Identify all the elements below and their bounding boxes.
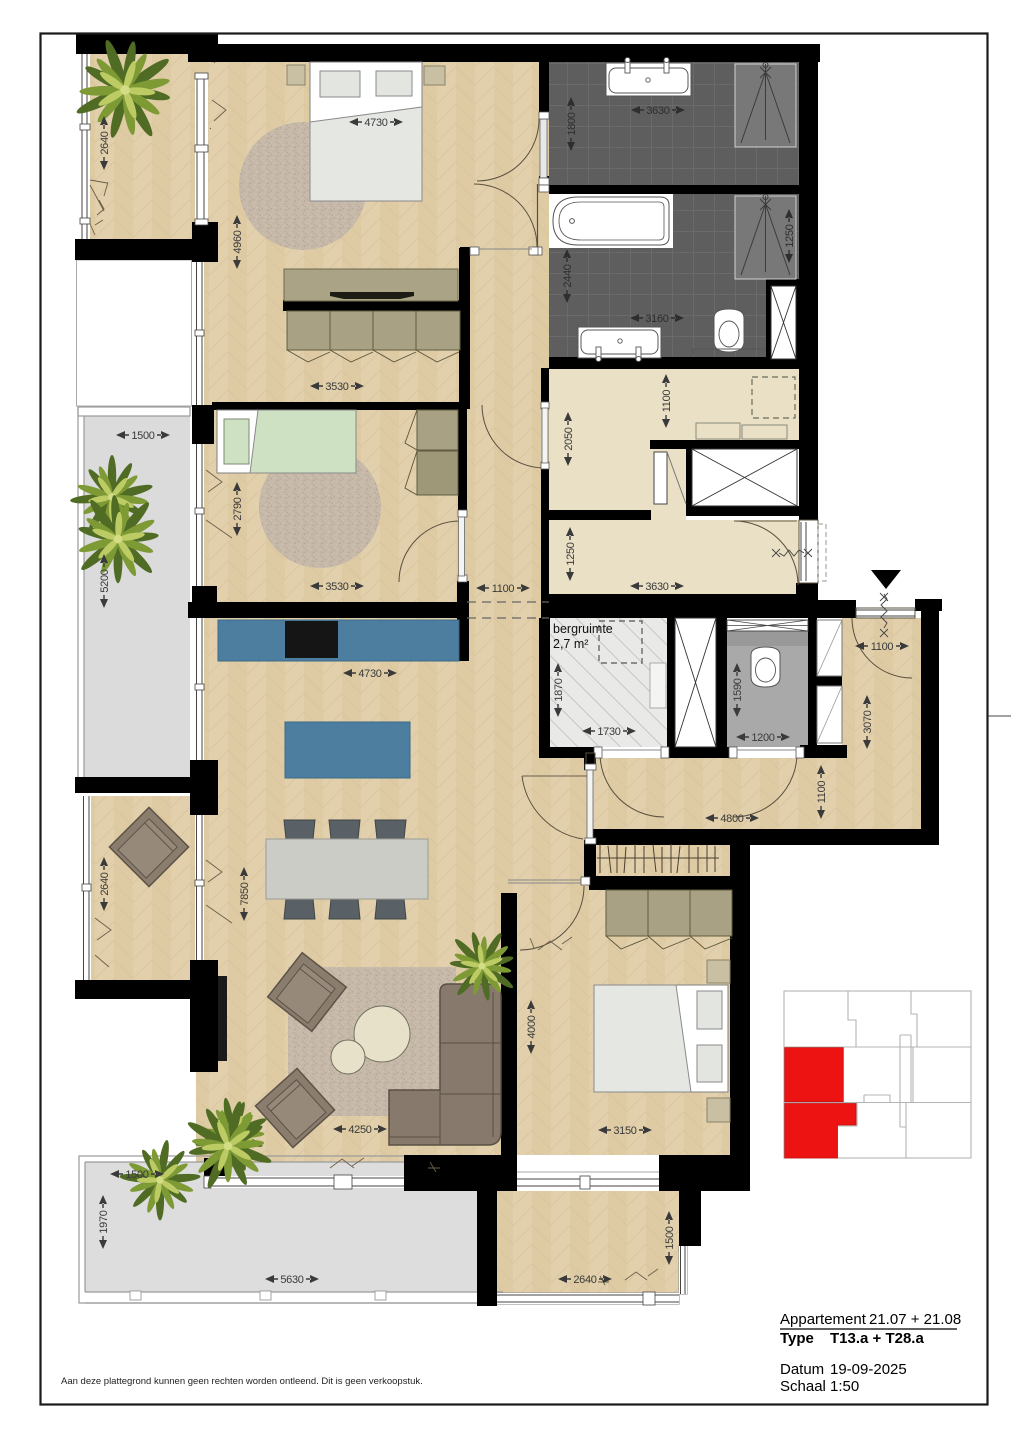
svg-text:1500: 1500 bbox=[125, 1169, 148, 1181]
svg-text:Datum: Datum bbox=[780, 1361, 824, 1378]
svg-text:1250: 1250 bbox=[565, 542, 577, 565]
svg-text:4960: 4960 bbox=[232, 230, 244, 253]
svg-text:21.07 + 21.08: 21.07 + 21.08 bbox=[869, 1311, 961, 1328]
svg-text:4000: 4000 bbox=[526, 1015, 538, 1038]
svg-text:1100: 1100 bbox=[661, 390, 673, 413]
svg-text:3160: 3160 bbox=[645, 313, 668, 325]
svg-text:1100: 1100 bbox=[816, 781, 828, 804]
svg-text:Schaal 1:50: Schaal 1:50 bbox=[780, 1378, 859, 1395]
svg-text:3630: 3630 bbox=[645, 581, 668, 593]
svg-text:5200: 5200 bbox=[99, 569, 111, 592]
svg-text:1590: 1590 bbox=[732, 678, 744, 701]
svg-text:3530: 3530 bbox=[325, 381, 348, 393]
svg-text:7850: 7850 bbox=[239, 882, 251, 905]
svg-text:3530: 3530 bbox=[325, 581, 348, 593]
svg-text:T13.a + T28.a: T13.a + T28.a bbox=[830, 1330, 924, 1347]
svg-text:19-09-2025: 19-09-2025 bbox=[830, 1361, 907, 1378]
svg-text:2,7 m²: 2,7 m² bbox=[553, 637, 588, 651]
svg-text:Appartement: Appartement bbox=[780, 1311, 867, 1328]
svg-text:2640: 2640 bbox=[573, 1274, 596, 1286]
svg-text:2640: 2640 bbox=[99, 872, 111, 895]
svg-text:4730: 4730 bbox=[364, 117, 387, 129]
svg-text:4730: 4730 bbox=[358, 668, 381, 680]
svg-text:3630: 3630 bbox=[646, 105, 669, 117]
svg-text:1250: 1250 bbox=[784, 224, 796, 247]
svg-text:1800: 1800 bbox=[566, 112, 578, 135]
svg-text:Type: Type bbox=[780, 1330, 814, 1347]
svg-text:1200: 1200 bbox=[751, 732, 774, 744]
svg-text:4800: 4800 bbox=[720, 813, 743, 825]
svg-text:1500: 1500 bbox=[131, 430, 154, 442]
svg-text:3150: 3150 bbox=[613, 1125, 636, 1137]
svg-text:3070: 3070 bbox=[862, 710, 874, 733]
svg-text:Aan deze plattegrond kunnen ge: Aan deze plattegrond kunnen geen rechten… bbox=[61, 1376, 423, 1387]
svg-text:1870: 1870 bbox=[553, 678, 565, 701]
svg-text:2790: 2790 bbox=[232, 497, 244, 520]
svg-text:1500: 1500 bbox=[664, 1226, 676, 1249]
svg-text:1730: 1730 bbox=[597, 726, 620, 738]
svg-text:4250: 4250 bbox=[348, 1124, 371, 1136]
svg-text:1970: 1970 bbox=[98, 1210, 110, 1233]
svg-text:2440: 2440 bbox=[562, 264, 574, 287]
svg-text:2050: 2050 bbox=[563, 427, 575, 450]
svg-text:1100: 1100 bbox=[492, 583, 515, 595]
svg-text:5630: 5630 bbox=[280, 1274, 303, 1286]
svg-text:1100: 1100 bbox=[871, 641, 894, 653]
svg-text:2640: 2640 bbox=[99, 131, 111, 154]
svg-text:bergruimte: bergruimte bbox=[553, 622, 613, 636]
